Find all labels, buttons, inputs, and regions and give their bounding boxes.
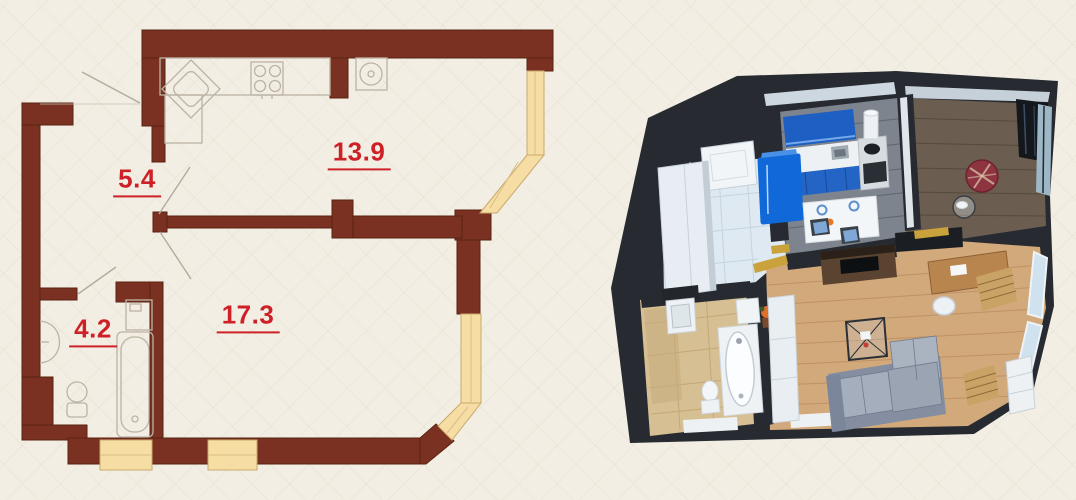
- desk-chair-3d: [933, 297, 955, 315]
- round-appliance-icon: [356, 58, 387, 90]
- coffee-table-3d: [846, 318, 887, 360]
- plaid-pouf-3d: [966, 160, 998, 192]
- vanity-3d: [666, 298, 696, 334]
- washing-machine-icon: [126, 300, 152, 330]
- room-area-label-living: 17.3: [217, 301, 280, 333]
- kitchen-sink-icon: [162, 60, 220, 118]
- floorplan-stage: 5.4 13.9 4.2 17.3: [0, 0, 1076, 500]
- room-area-label-bathroom: 4.2: [69, 315, 117, 347]
- toilet-icon: [67, 382, 87, 417]
- cooker-hood-3d: [864, 110, 878, 139]
- kitchen-fixtures-2d: [160, 58, 387, 143]
- wardrobe-3d: [658, 161, 716, 297]
- glass-side-table-3d: [953, 196, 975, 218]
- hall-door-swing: [159, 167, 190, 214]
- entrance-door-swing: [82, 72, 140, 103]
- bookcase-3d: [1006, 356, 1035, 414]
- bath-door-swing: [78, 267, 116, 294]
- bathtub-3d: [718, 324, 763, 416]
- floor-plan-2d: [22, 30, 553, 470]
- render-3d: [611, 71, 1058, 443]
- storage-column-3d: [768, 295, 799, 423]
- fridge-3d: [760, 149, 801, 222]
- living-door-swing: [160, 232, 191, 279]
- room-area-label-kitchen: 13.9: [328, 138, 391, 170]
- bathtub-icon: [117, 332, 153, 437]
- stove-oven-3d: [858, 136, 889, 190]
- room-area-label-hallway: 5.4: [113, 165, 161, 197]
- kitchen-counter-icon: [160, 58, 330, 95]
- floorplan-graphic: [0, 0, 1076, 500]
- bath-white-box-3d: [736, 298, 760, 324]
- stove-icon: [251, 62, 283, 99]
